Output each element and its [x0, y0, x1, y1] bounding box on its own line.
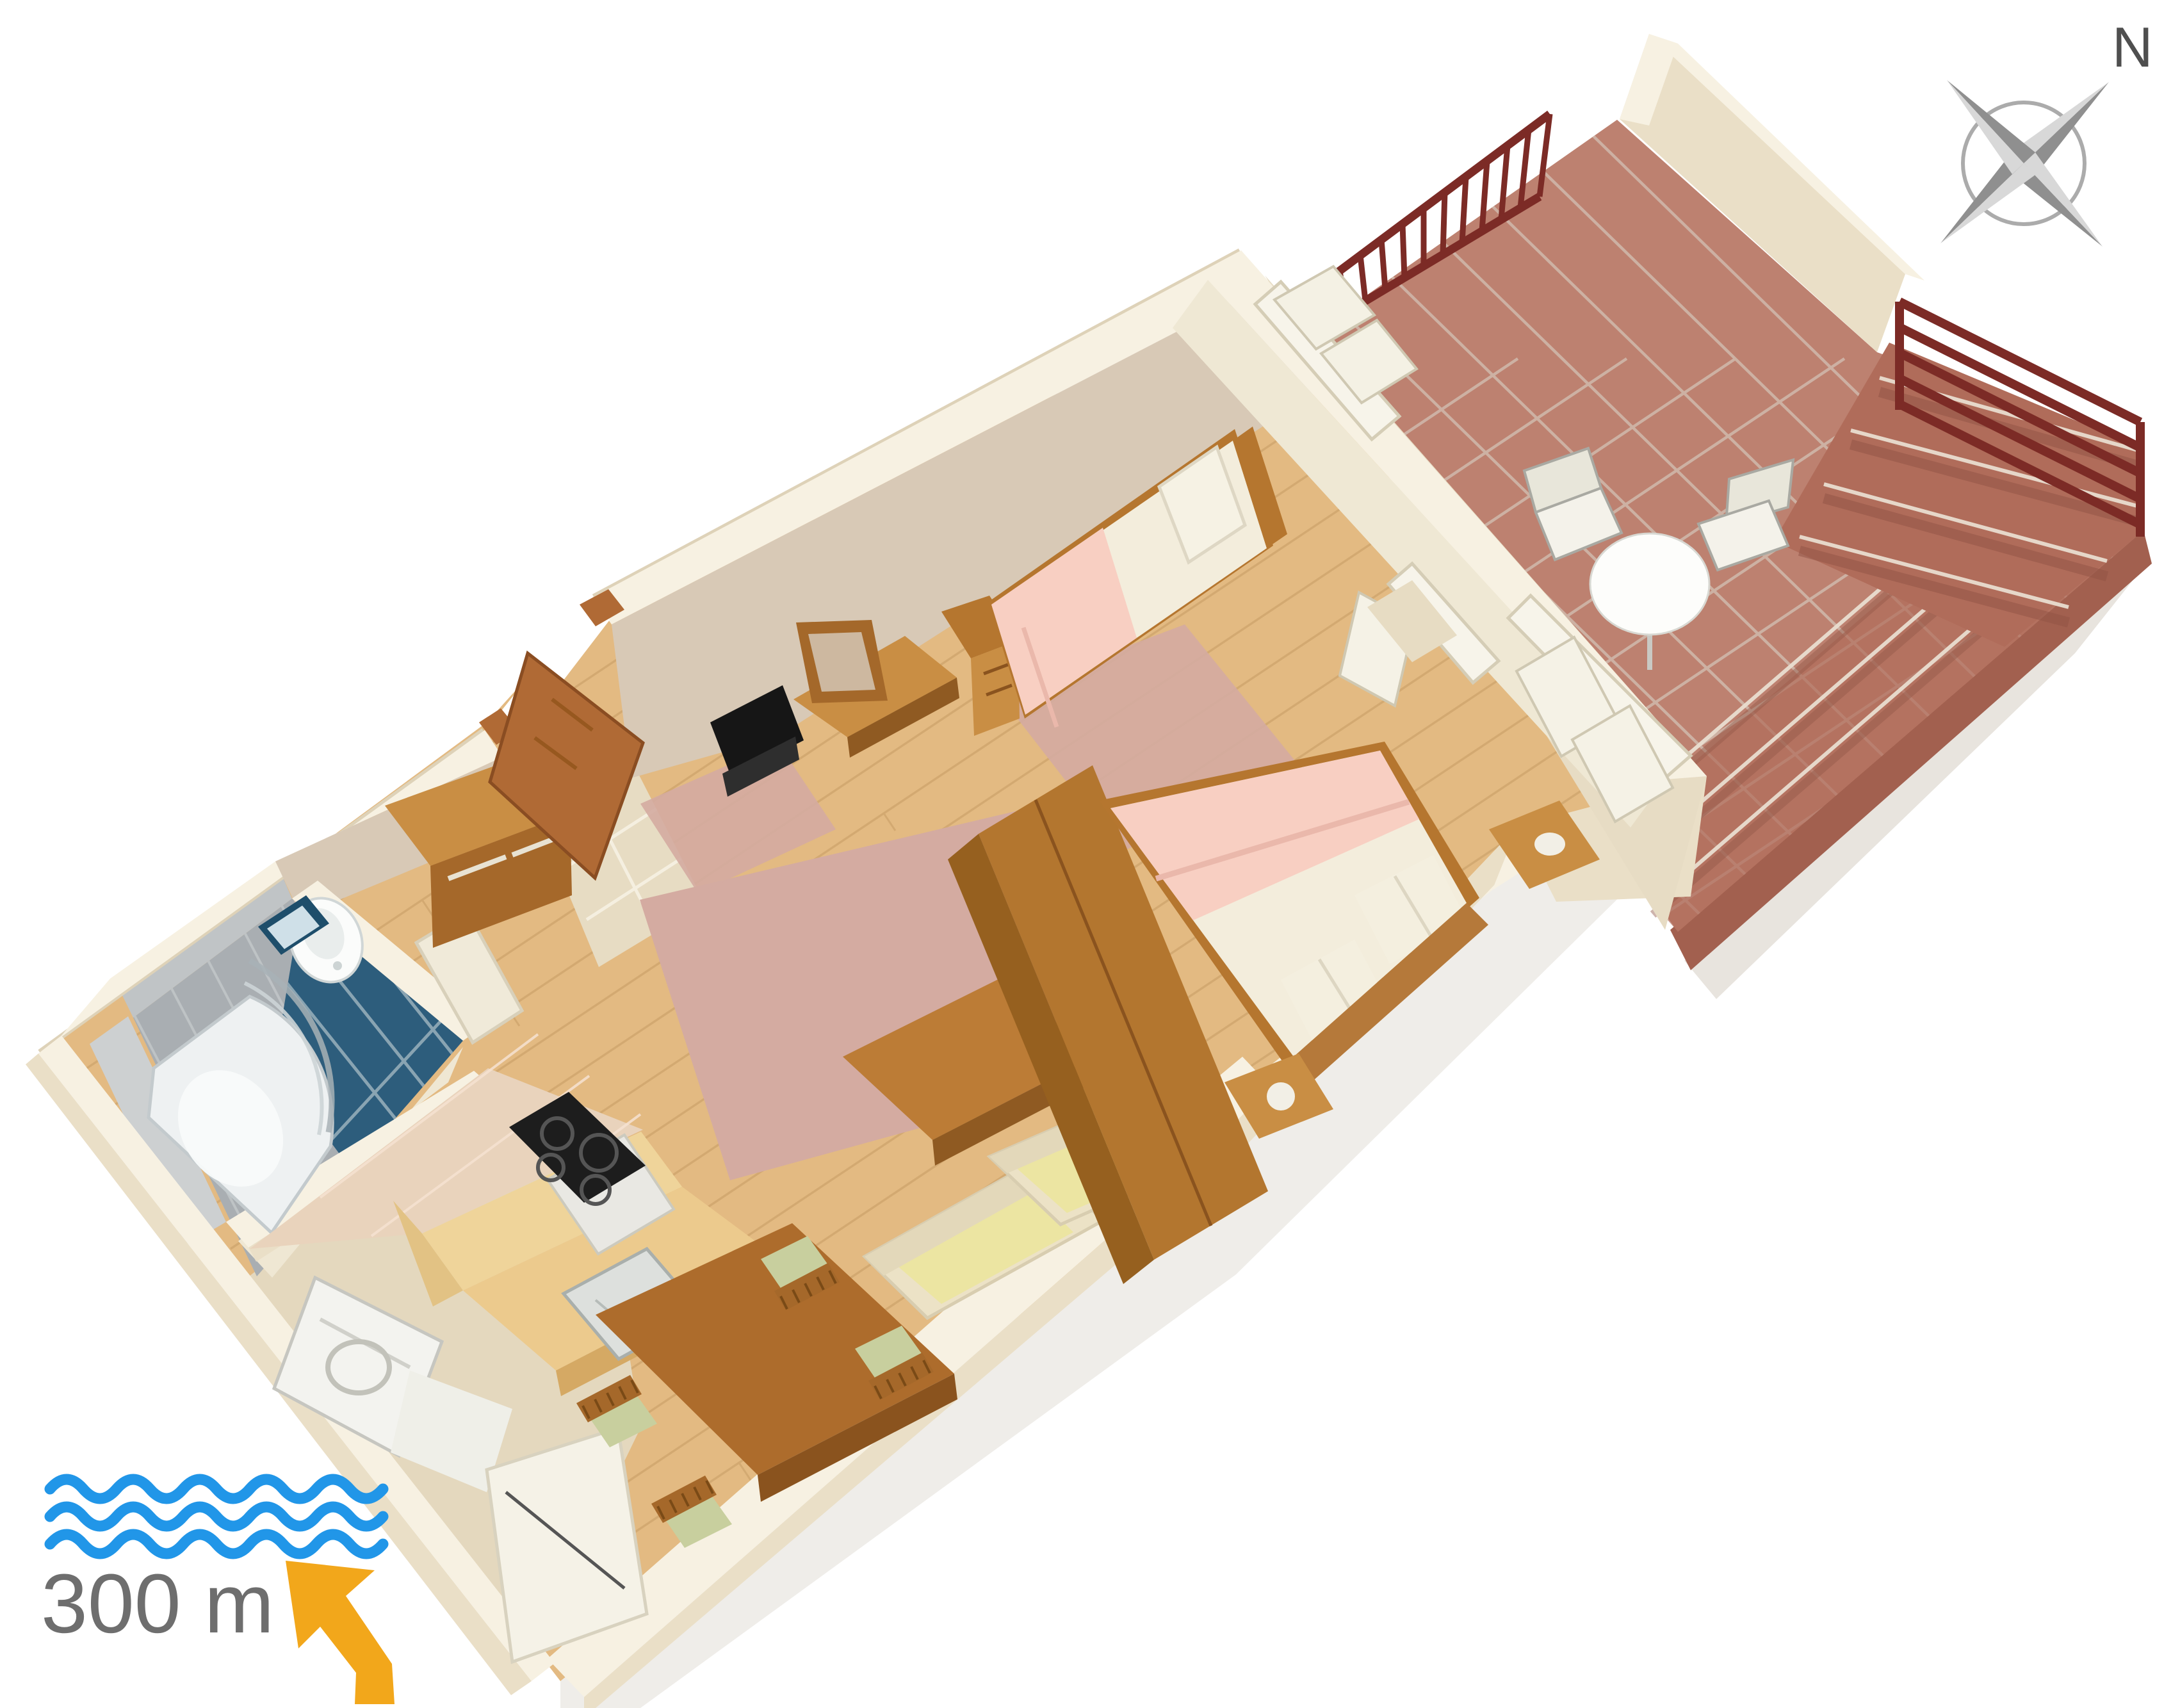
svg-text:N: N — [2112, 15, 2153, 79]
svg-text:300 m: 300 m — [41, 1556, 274, 1650]
